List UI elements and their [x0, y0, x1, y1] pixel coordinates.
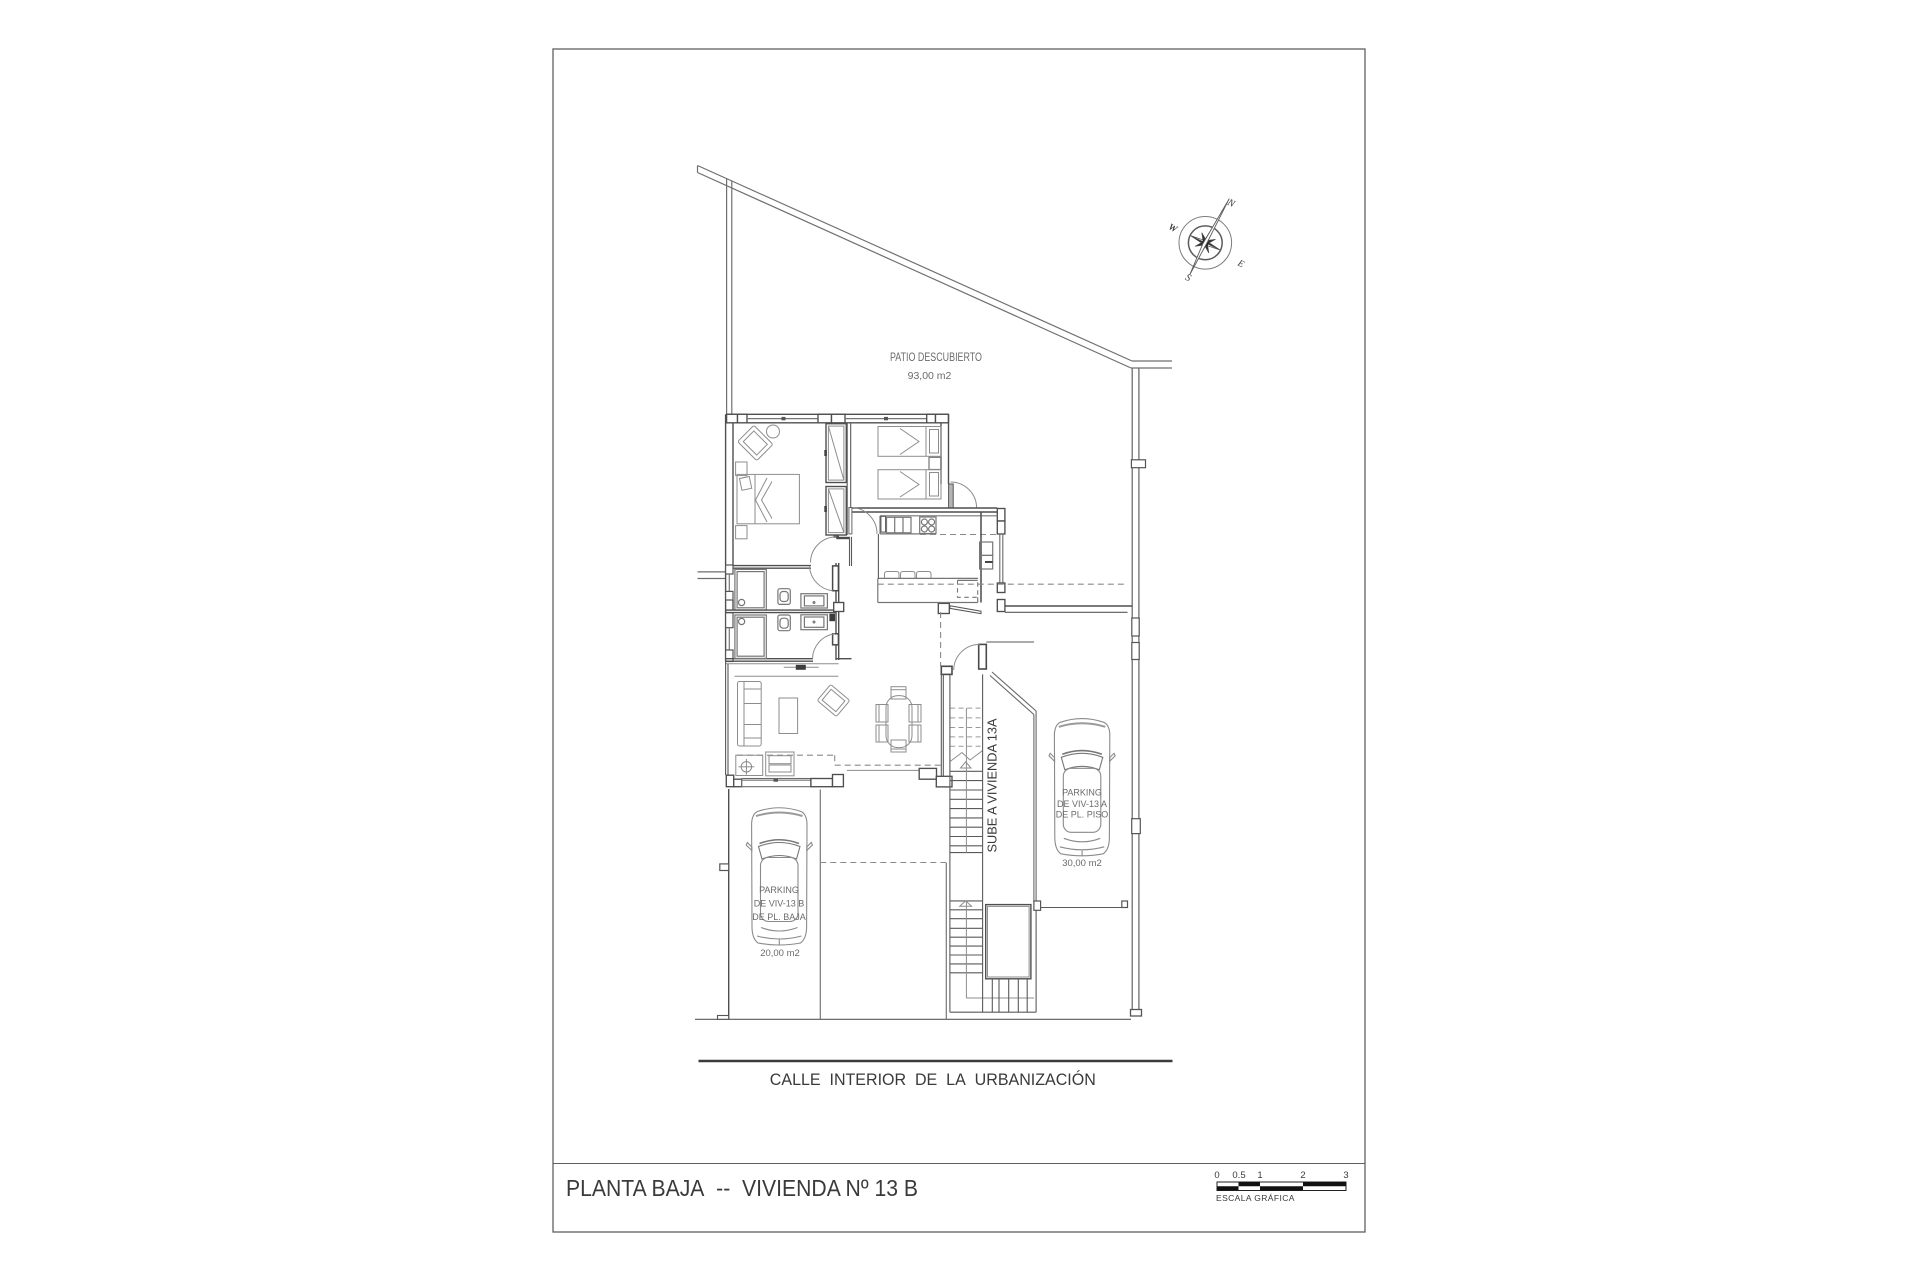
svg-text:DE VIV-13 B: DE VIV-13 B	[754, 899, 805, 909]
svg-text:DE VIV-13 A: DE VIV-13 A	[1057, 799, 1107, 809]
svg-text:0.5: 0.5	[1232, 1170, 1245, 1181]
svg-text:PATIO DESCUBIERTO: PATIO DESCUBIERTO	[890, 352, 982, 364]
svg-text:PARKING: PARKING	[1062, 788, 1102, 798]
svg-text:DE PL. PISO: DE PL. PISO	[1056, 810, 1109, 820]
svg-text:PARKING: PARKING	[759, 885, 799, 895]
svg-text:DE PL. BAJA: DE PL. BAJA	[752, 912, 806, 922]
svg-text:1: 1	[1257, 1170, 1262, 1181]
svg-text:ESCALA GRÁFICA: ESCALA GRÁFICA	[1216, 1193, 1295, 1203]
svg-text:93,00 m2: 93,00 m2	[908, 370, 952, 382]
svg-text:PLANTA BAJA -- VIVIENDA Nº 1: PLANTA BAJA -- VIVIENDA Nº 13 B	[566, 1175, 918, 1201]
svg-text:SUBE A VIVIENDA 13A: SUBE A VIVIENDA 13A	[985, 718, 1000, 852]
svg-text:30,00 m2: 30,00 m2	[1062, 858, 1102, 869]
svg-text:20,00 m2: 20,00 m2	[760, 948, 800, 959]
svg-text:2: 2	[1300, 1170, 1305, 1181]
svg-text:3: 3	[1343, 1170, 1348, 1181]
svg-text:0: 0	[1214, 1170, 1219, 1181]
svg-text:CALLE INTERIOR DE LA URBAN: CALLE INTERIOR DE LA URBANIZACIÓN	[770, 1070, 1096, 1089]
